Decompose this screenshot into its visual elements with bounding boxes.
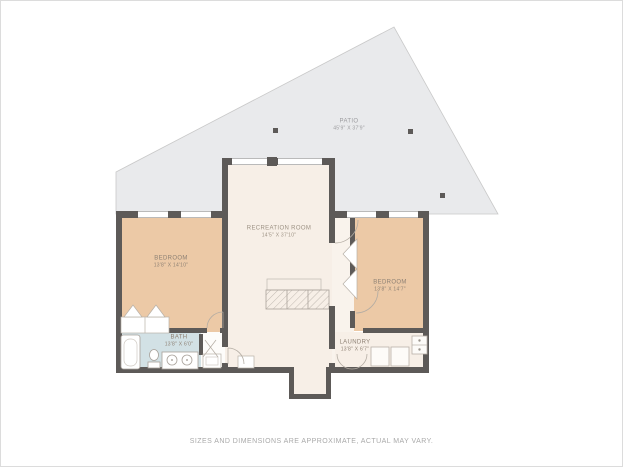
disclaimer-text: SIZES AND DIMENSIONS ARE APPROXIMATE, AC…	[1, 438, 622, 445]
floor-plan-page: PATIO 45'9" x 37'9" RECREATION ROOM 14'5…	[0, 0, 623, 467]
toilet-tank-icon	[148, 362, 160, 368]
patio-post-icon	[273, 128, 278, 133]
wall-post-icon	[267, 157, 277, 166]
washer-icon	[371, 347, 389, 366]
window-icon	[181, 211, 211, 218]
entry-bumpout-floor	[292, 369, 328, 397]
patio-post-icon	[440, 193, 445, 198]
window-icon	[347, 211, 376, 218]
window-icon	[389, 211, 418, 218]
patio-post-icon	[408, 129, 413, 134]
window-icon	[138, 211, 168, 218]
toilet-icon	[150, 350, 159, 361]
floor-plan-drawing	[1, 1, 623, 467]
window-icon	[278, 158, 322, 165]
dryer-icon	[391, 347, 409, 366]
window-icon	[232, 158, 267, 165]
bedroom-right-floor	[353, 216, 426, 331]
cabinet-icon	[238, 356, 254, 368]
recreation-room-floor	[222, 161, 335, 373]
